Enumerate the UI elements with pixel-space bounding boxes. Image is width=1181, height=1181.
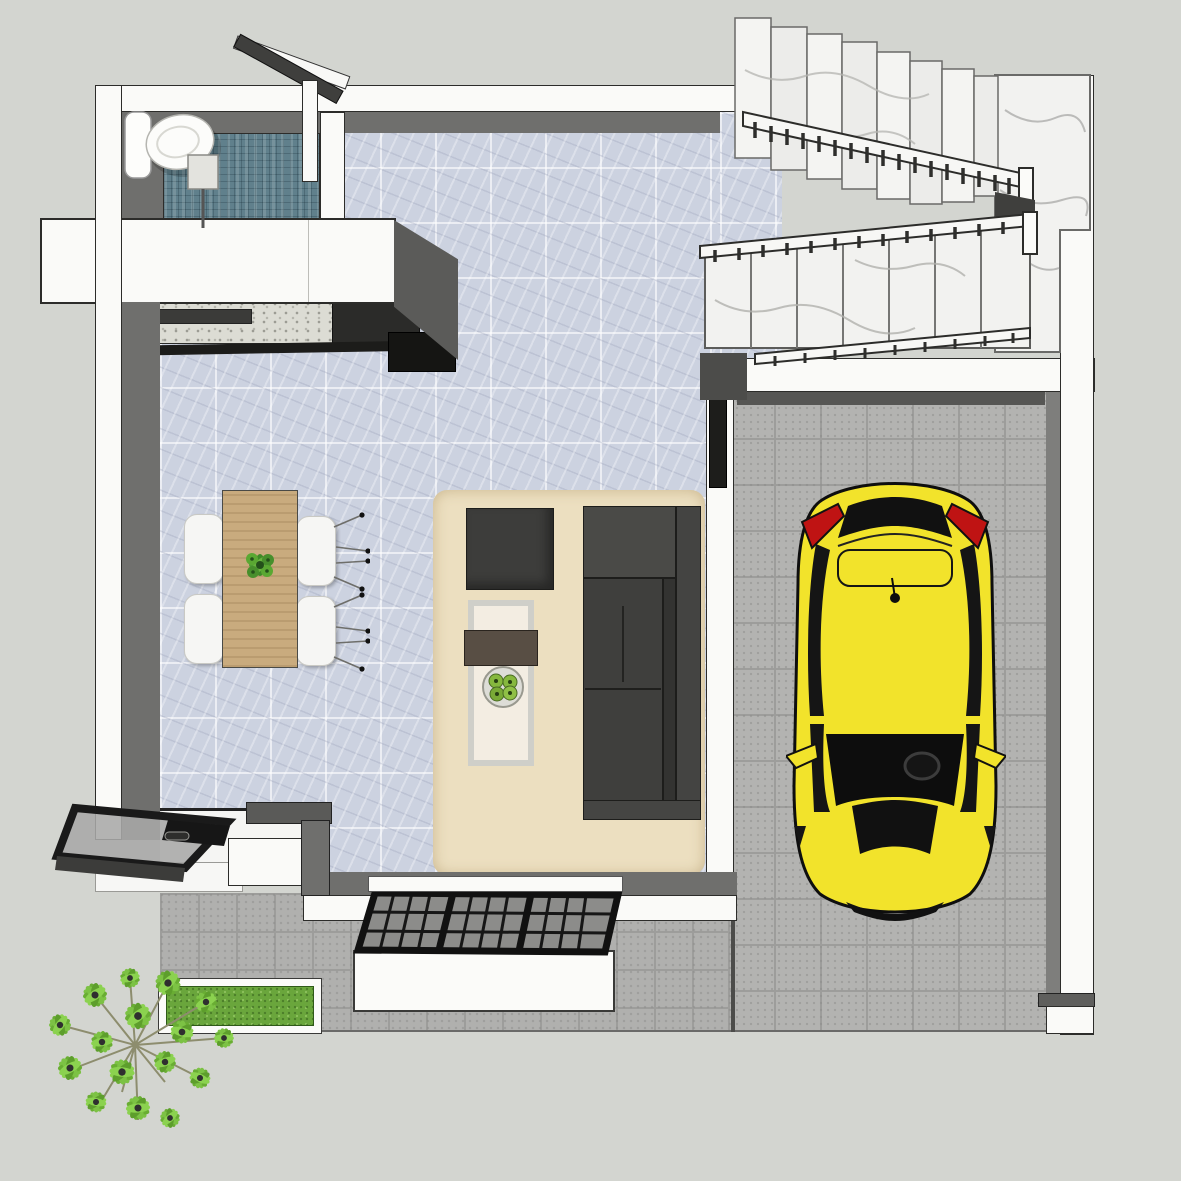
car-steering-wheel: [905, 753, 939, 779]
car-roof-panel: [838, 550, 952, 586]
stair-base-dark-wall: [700, 353, 747, 400]
chair-leg-lines: [334, 515, 368, 669]
staircase: [695, 0, 1100, 405]
sofa-right-arm: [676, 506, 701, 806]
toilet: [122, 100, 242, 245]
step-wall-vertical-face: [301, 820, 330, 896]
garage-pillar-cap: [1038, 993, 1095, 1007]
dining-chair: [184, 514, 224, 584]
sofa-stitch-line: [622, 606, 624, 682]
kitchen-sink-inset: [152, 309, 252, 324]
sofa-base-band: [583, 800, 701, 820]
ottoman: [466, 508, 554, 590]
trellis-canopy: [350, 884, 625, 962]
sofa-chaise-section: [583, 506, 676, 578]
right-wall-inner-face: [1046, 392, 1060, 993]
chair-leg-feet: [359, 512, 370, 671]
plate: [483, 667, 523, 707]
plant-leaves: [246, 553, 274, 578]
trellis-wall-beam: [368, 876, 623, 892]
floor-drain-box: [188, 155, 218, 189]
kitchen-island-seam: [308, 220, 309, 302]
yellow-car: [786, 466, 1006, 924]
sofa-cushion-seam: [585, 688, 661, 690]
coffee-table-tray: [464, 630, 538, 666]
bathroom-door-jamb: [302, 80, 318, 182]
entry-canopy: [45, 790, 270, 895]
fruit-plate: [480, 664, 526, 710]
table-centerpiece-plant: [236, 541, 284, 589]
middle-railing-newel: [1023, 212, 1037, 254]
car-windshield: [826, 734, 964, 806]
tree-foliage: [48, 963, 238, 1130]
car-hood-scoop: [852, 800, 938, 854]
dining-chair: [184, 594, 224, 664]
floor-plan-scene: [0, 0, 1181, 1181]
canopy-handle: [165, 832, 189, 840]
left-wall-inner-face: [122, 302, 160, 840]
sofa-backrest: [663, 578, 676, 802]
dining-chair-legs: [290, 505, 370, 685]
top-wall-inner-face: [345, 112, 720, 133]
stair-upper-steps: [735, 18, 998, 204]
left-exterior-wall: [95, 85, 122, 840]
exterior-tree: [20, 950, 270, 1155]
garage-pillar: [1046, 1006, 1094, 1034]
